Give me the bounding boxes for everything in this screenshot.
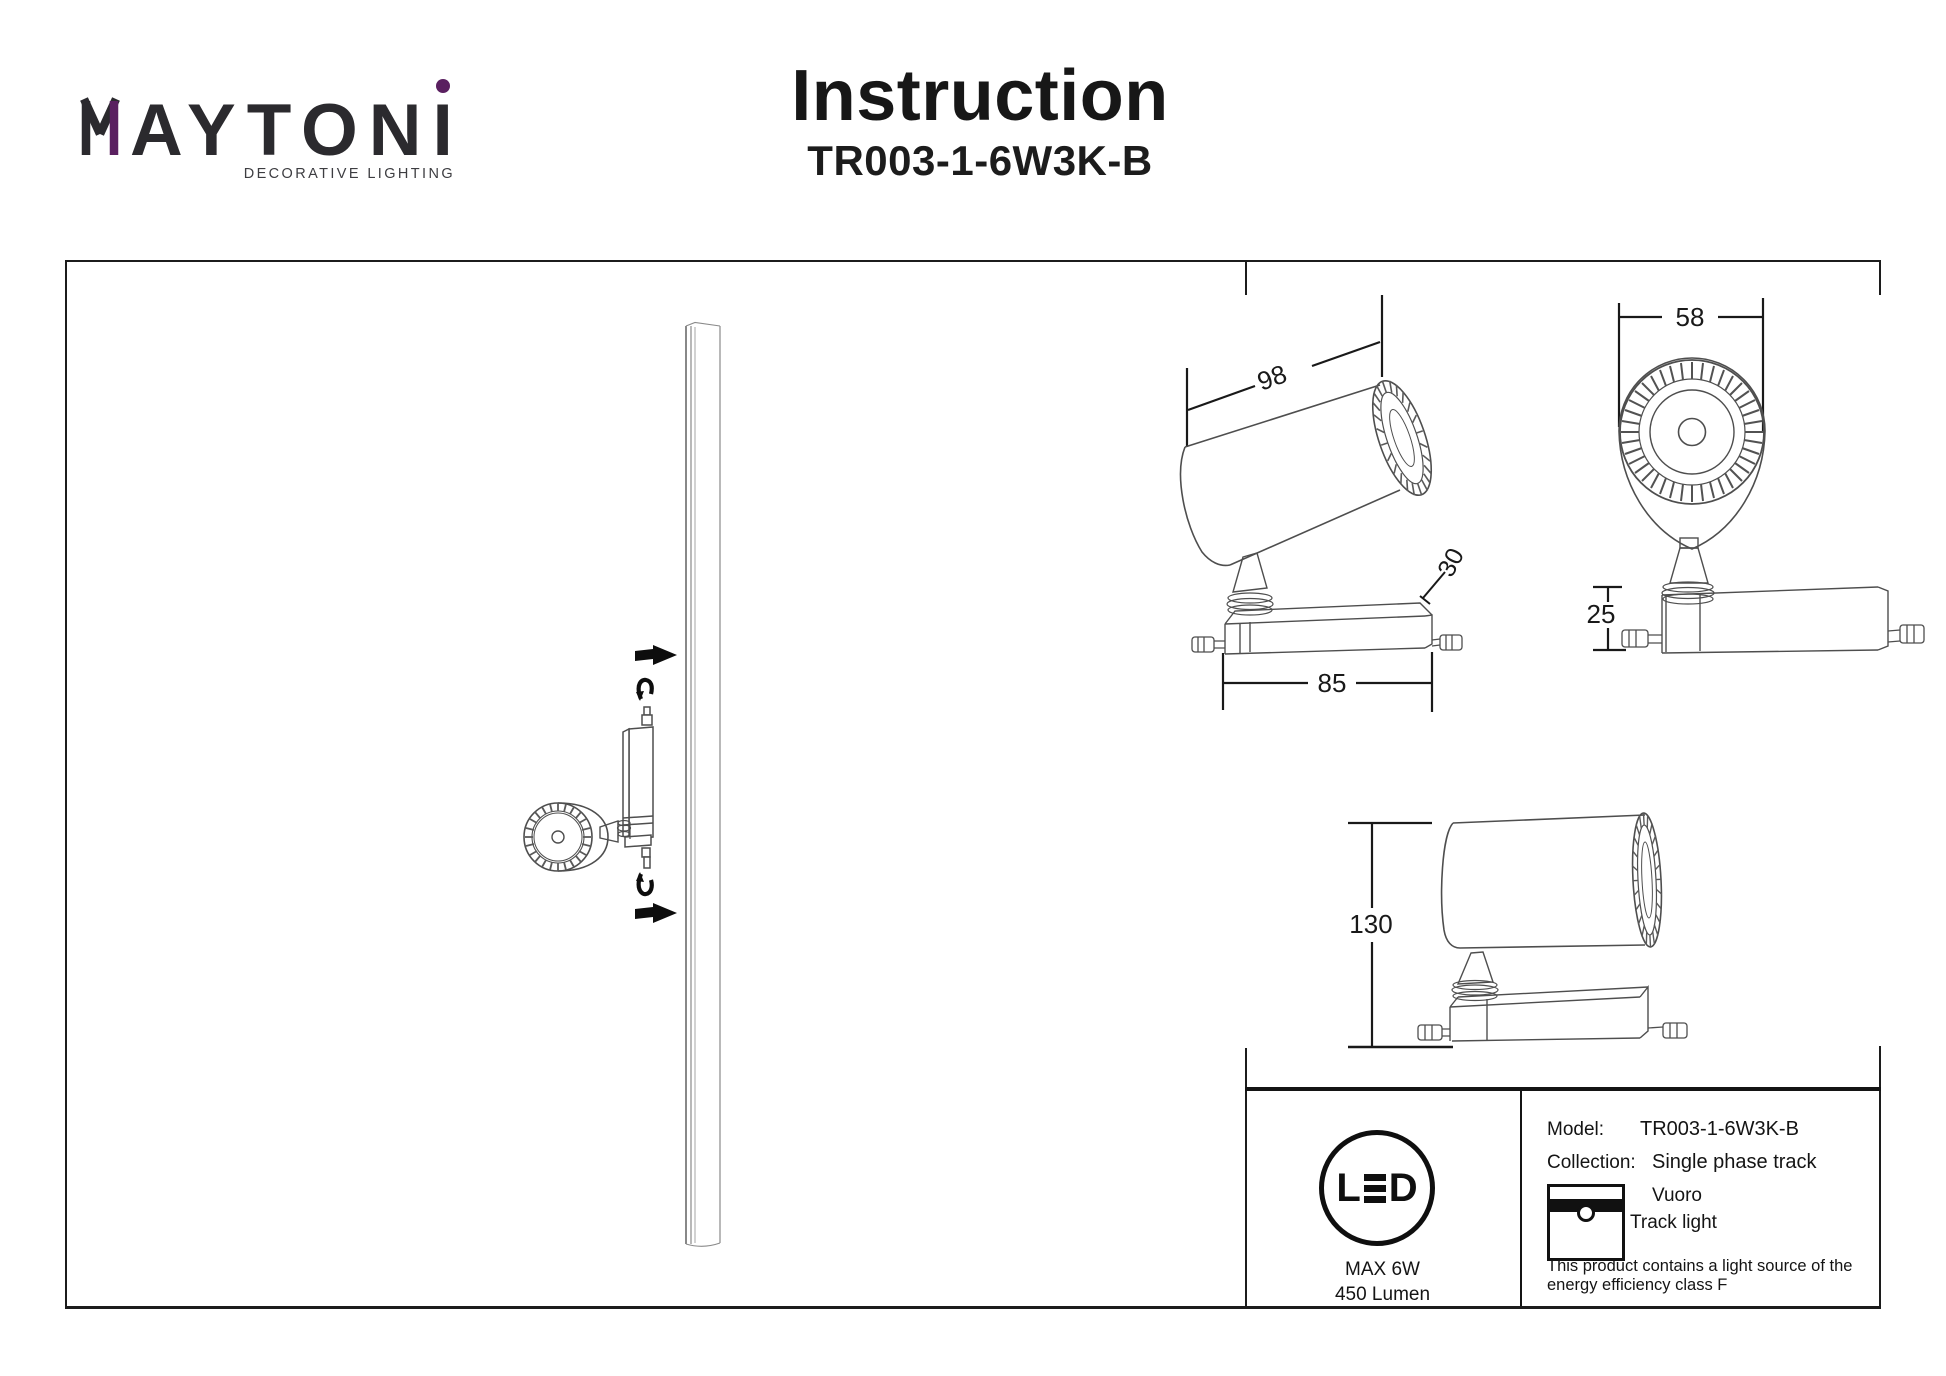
height-view-drawing: 130 (1340, 800, 1710, 1060)
screw-right (1888, 625, 1924, 643)
reflector-ribs (1362, 374, 1443, 502)
track-adapter-side (623, 707, 653, 868)
spotlight-side (1418, 812, 1687, 1041)
rotate-arrow-bottom-icon (636, 872, 652, 894)
side-view-drawing: 98 (1140, 280, 1480, 725)
led-badge: L D (1319, 1130, 1435, 1246)
dim-25: 25 (1584, 587, 1626, 650)
bezel-ticks (1621, 362, 1763, 502)
led-letter-d: D (1389, 1173, 1418, 1203)
frame-top-border (65, 260, 1881, 262)
collection-label: Collection: (1547, 1152, 1636, 1174)
logo-tagline: DECORATIVE LIGHTING (244, 166, 455, 182)
spotlight-front (1619, 358, 1924, 653)
collection-value: Single phase track (1652, 1151, 1817, 1173)
frame-bottom-border (65, 1306, 1881, 1309)
efficiency-note-line1: This product contains a light source of … (1547, 1257, 1852, 1276)
instruction-sheet: AYTONI DECORATIVE LIGHTING Instruction T… (0, 0, 1946, 1376)
screw-left (1418, 1025, 1450, 1040)
maytoni-logo: AYTONI DECORATIVE LIGHTING (78, 70, 478, 185)
dim-30 (1420, 572, 1445, 604)
spotlight-body (1181, 374, 1462, 654)
screw-left (1192, 637, 1225, 652)
efficiency-note-line2: energy efficiency class F (1547, 1276, 1727, 1295)
product-type: Track light (1630, 1212, 1717, 1234)
screw-right (1648, 1023, 1687, 1038)
spotlight-rear-view (524, 803, 631, 871)
model-number: TR003-1-6W3K-B (680, 138, 1280, 184)
title-block: Instruction TR003-1-6W3K-B (680, 58, 1280, 184)
dim-25-label: 25 (1587, 599, 1616, 629)
insert-arrow-bottom-icon (635, 903, 677, 923)
insert-arrow-top-icon (635, 645, 677, 665)
dim-98-label: 98 (1253, 359, 1290, 397)
page-title: Instruction (680, 58, 1280, 134)
spec-table-divider (1520, 1091, 1522, 1306)
logo-wordmark: AYTONI (130, 90, 464, 171)
track-rail (686, 323, 720, 1247)
max-power: MAX 6W (1245, 1259, 1520, 1281)
screw-left (1622, 630, 1662, 647)
led-letter-l: L (1336, 1173, 1360, 1203)
dim-85-label: 85 (1318, 668, 1347, 698)
logo-i-dot-icon (436, 79, 450, 93)
adapter-base (1225, 603, 1432, 654)
front-view-drawing: 58 (1560, 290, 1946, 670)
installation-drawing (495, 318, 735, 1253)
spec-table: L D MAX 6W 450 Lumen Model: TR003-1-6W3K… (1245, 1087, 1881, 1306)
model-value: TR003-1-6W3K-B (1640, 1118, 1799, 1140)
led-e-bars-icon (1364, 1174, 1386, 1203)
screw-right (1432, 635, 1462, 650)
rotate-arrow-top-icon (636, 680, 652, 701)
track-light-icon (1547, 1184, 1625, 1261)
dim-130-label: 130 (1349, 909, 1392, 939)
logo-m-icon (84, 99, 116, 155)
model-label: Model: (1547, 1119, 1604, 1141)
luminous-flux: 450 Lumen (1245, 1284, 1520, 1306)
dim-30-label: 30 (1432, 544, 1470, 582)
frame-left-border (65, 260, 67, 1308)
adapter-base (1662, 587, 1888, 653)
dim-58-label: 58 (1676, 302, 1705, 332)
series-name: Vuoro (1652, 1185, 1702, 1207)
